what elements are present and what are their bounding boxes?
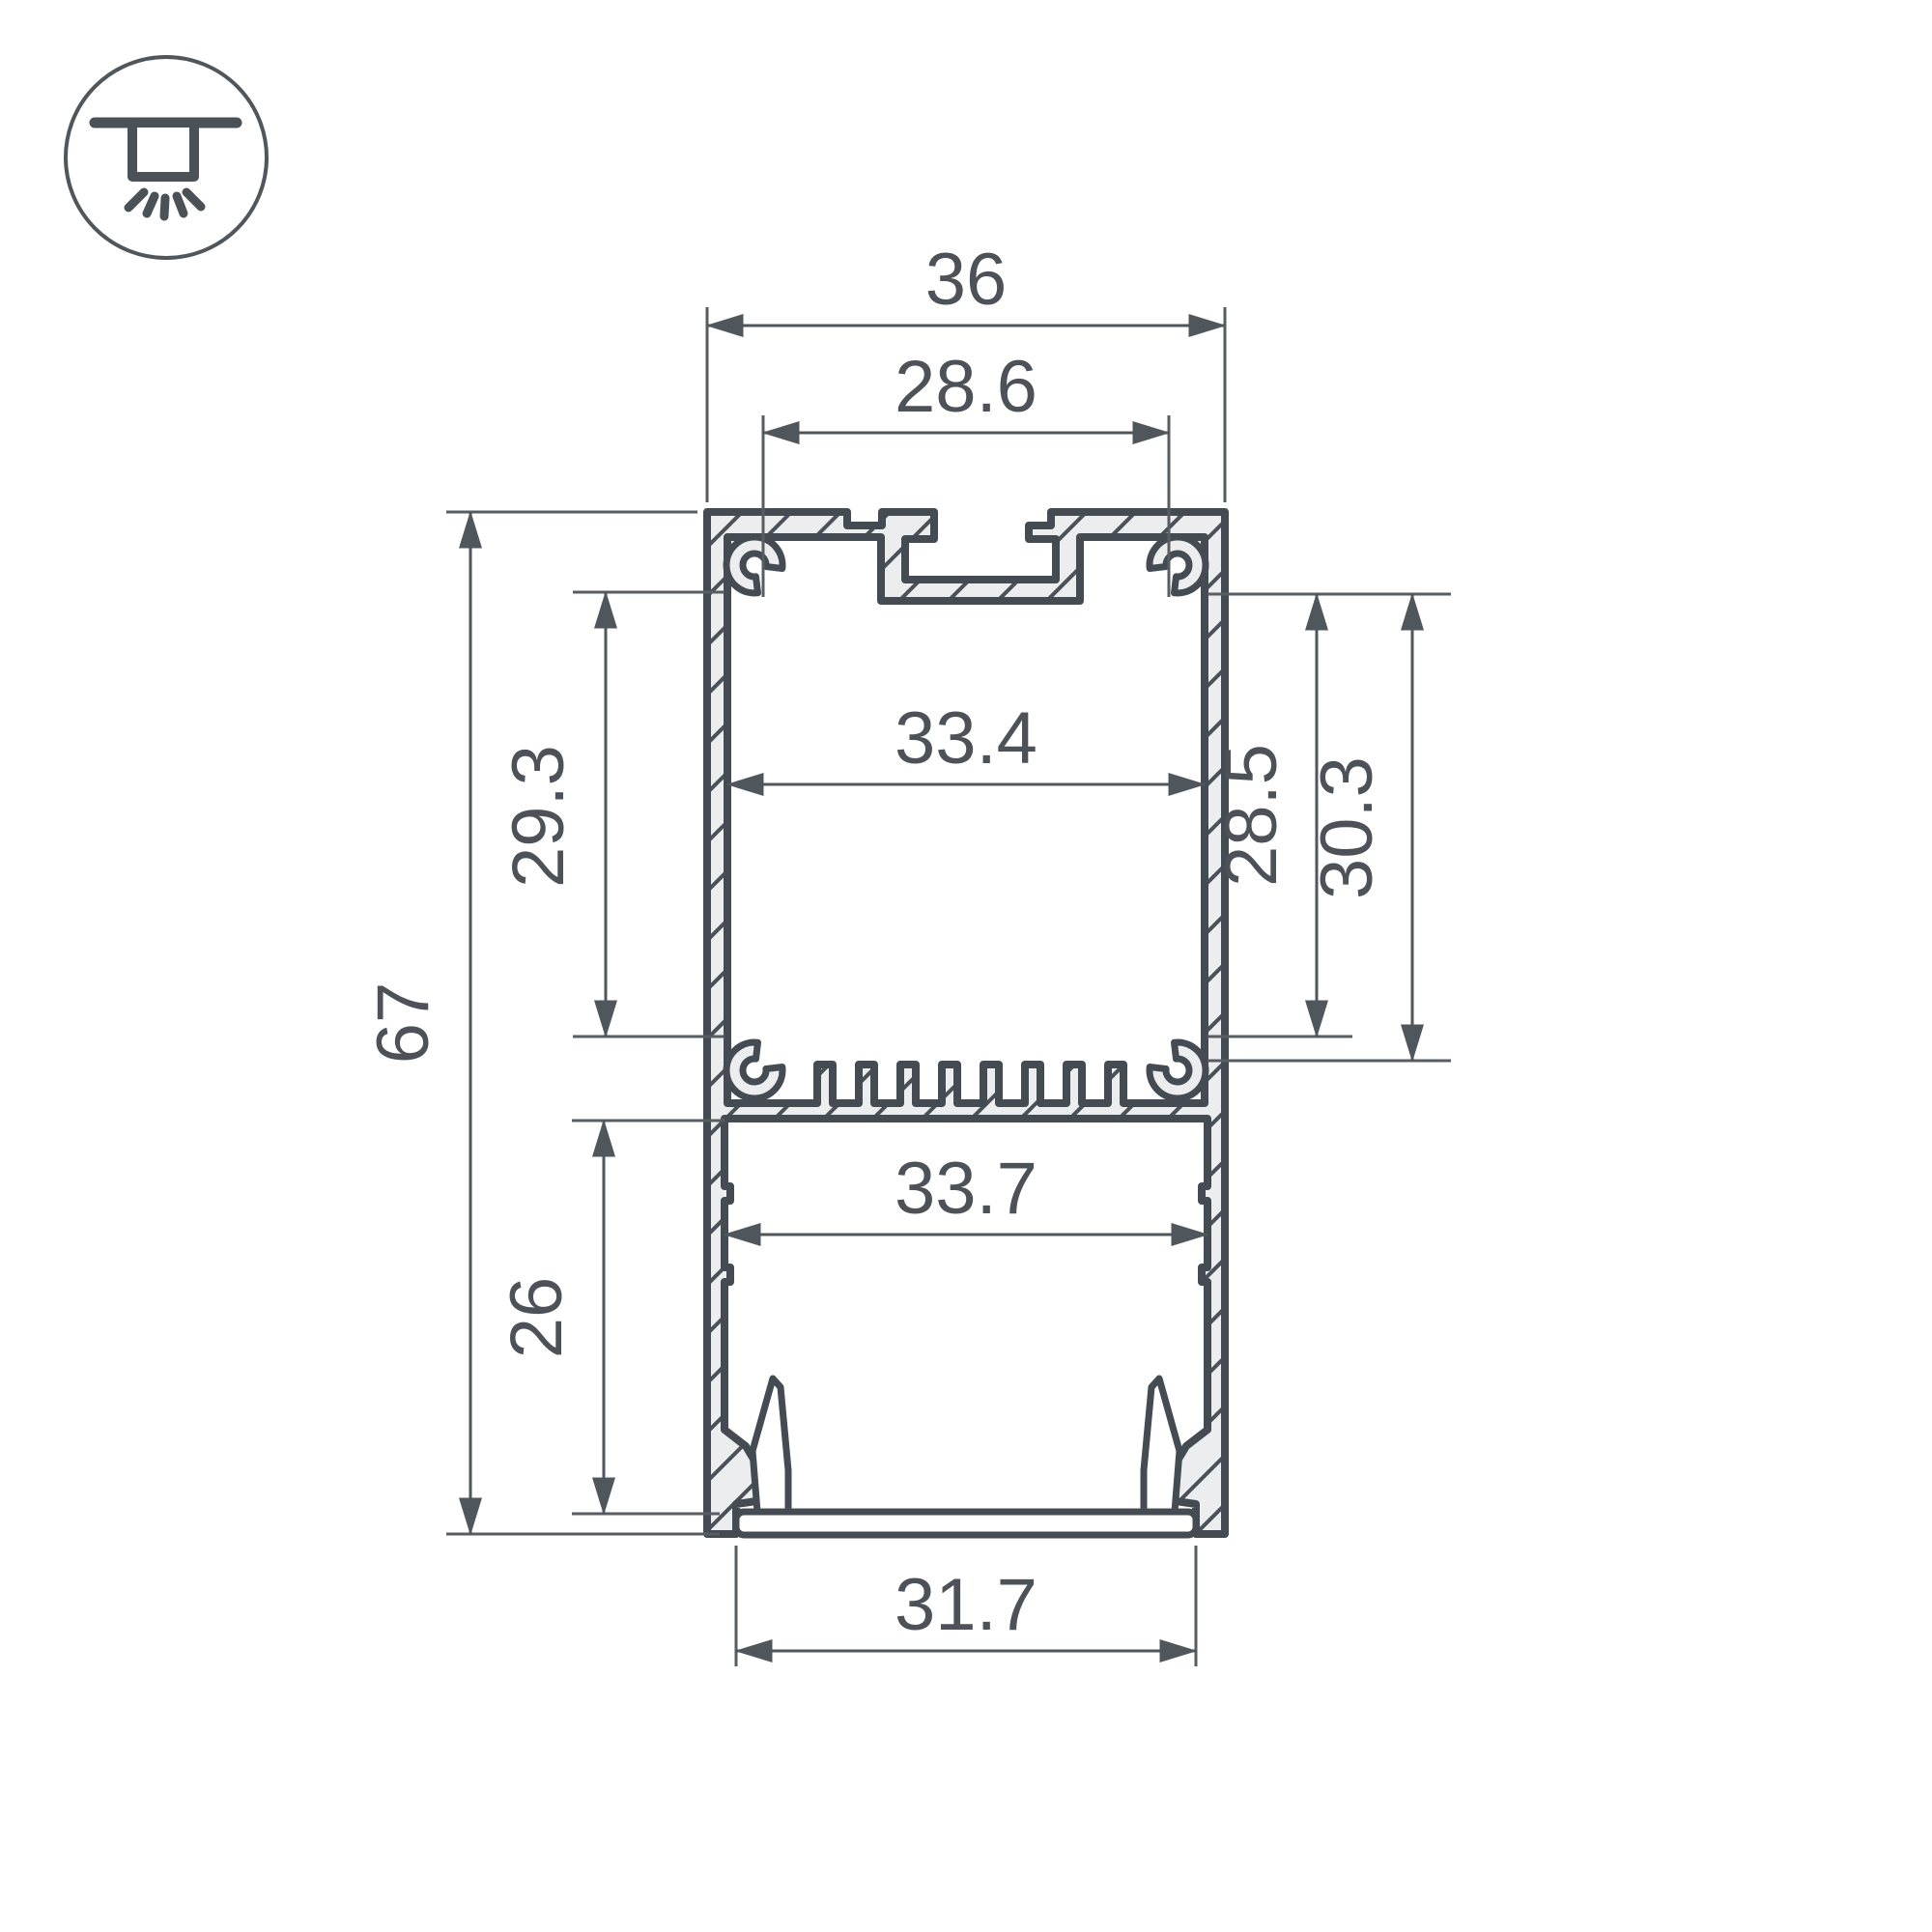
dim-label-lower-inner-height: 26 xyxy=(496,1277,578,1359)
dim-label-top-width: 36 xyxy=(925,239,1008,321)
dim-label-right-inner-height-b: 30.3 xyxy=(1306,756,1388,899)
dim-label-upper-inner-height: 29.3 xyxy=(497,745,580,888)
ceiling-mount-icon xyxy=(66,57,267,258)
dim-label-lower-inner-width: 33.7 xyxy=(895,1148,1037,1230)
dim-label-bottom-opening-width: 31.7 xyxy=(895,1564,1037,1646)
luminaire-body xyxy=(132,123,194,177)
dim-label-mount-slot-width: 28.6 xyxy=(895,346,1037,428)
dim-label-right-inner-height-a: 28.5 xyxy=(1210,744,1293,887)
technical-drawing: 36 28.6 33.4 33.7 31.7 67 29.3 26 xyxy=(0,0,1932,1932)
dim-label-upper-inner-width: 33.4 xyxy=(895,697,1037,780)
dim-label-total-height: 67 xyxy=(362,982,444,1065)
diffuser-plate xyxy=(736,1512,1196,1535)
